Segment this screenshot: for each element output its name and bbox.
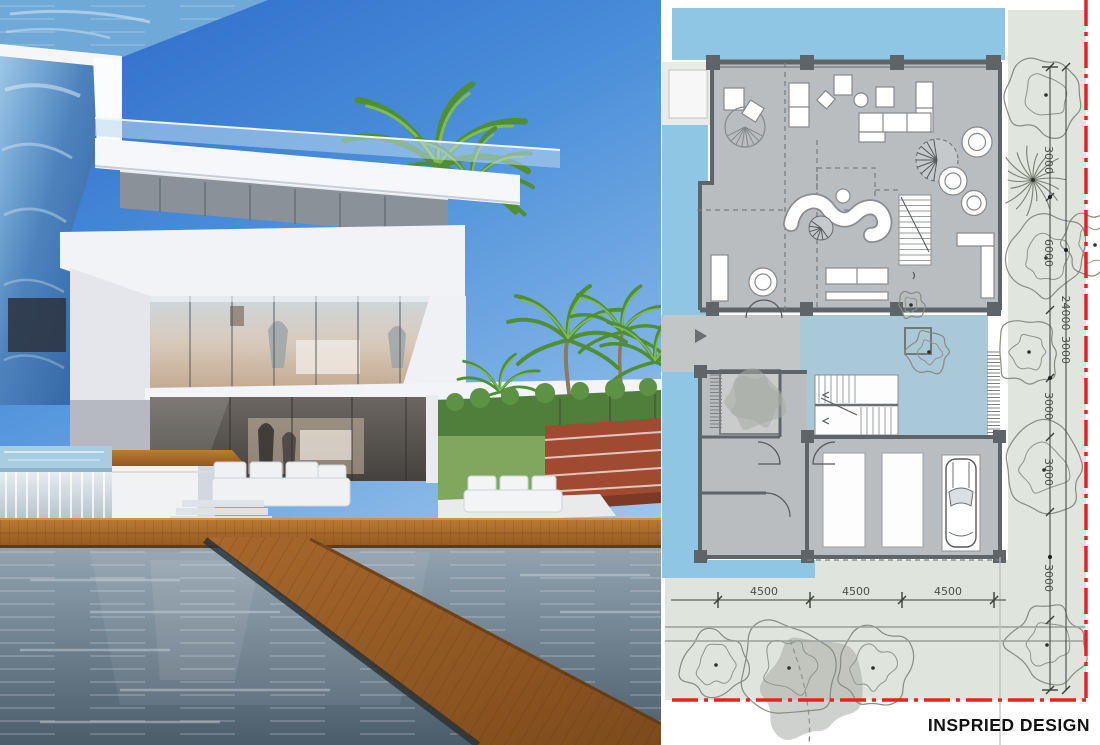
wall-window: [8, 298, 66, 352]
dim-label: 3000: [1042, 458, 1055, 486]
car: [942, 455, 980, 551]
dim-label: 4500: [934, 585, 962, 598]
parking-slab: [882, 453, 923, 547]
site-green-bottom: [665, 560, 1086, 700]
second-floor: [60, 225, 466, 402]
wood-deck: [0, 518, 661, 549]
design-credit: INSPRIED DESIGN: [928, 715, 1090, 735]
presentation-board: 4500 4500 4500 3000 6000 24000 3000 3000…: [0, 0, 1100, 745]
outdoor-sofa-left: [212, 462, 350, 506]
dim-label: 3000: [1059, 336, 1072, 364]
walkway: [661, 315, 800, 372]
dim-label: 4500: [842, 585, 870, 598]
floor-plan: 4500 4500 4500 3000 6000 24000 3000 3000…: [661, 0, 1100, 745]
dim-label: 24000: [1059, 296, 1072, 331]
dim-label: 3000: [1042, 564, 1055, 592]
pool-top: [672, 8, 1005, 60]
staircase: [815, 375, 898, 435]
roof-corner-column: [93, 57, 122, 152]
pool-bottom-band: [662, 560, 815, 578]
dim-label: 3000: [1042, 392, 1055, 420]
garage: [823, 453, 980, 551]
dim-label: 4500: [750, 585, 778, 598]
villa-render: [0, 0, 661, 745]
parking-slab: [823, 453, 865, 547]
waterfall-feature: [0, 446, 112, 528]
dim-label: 3000: [1042, 146, 1055, 174]
dim-label: 6000: [1042, 239, 1055, 267]
